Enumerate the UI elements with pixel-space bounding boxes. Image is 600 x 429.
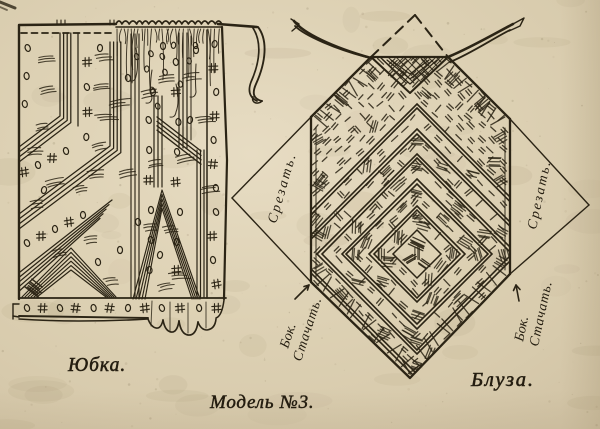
svg-text:Блуза.: Блуза. — [470, 369, 535, 391]
svg-text:Модель №3.: Модель №3. — [209, 392, 314, 413]
svg-text:Юбка.: Юбка. — [67, 355, 126, 376]
